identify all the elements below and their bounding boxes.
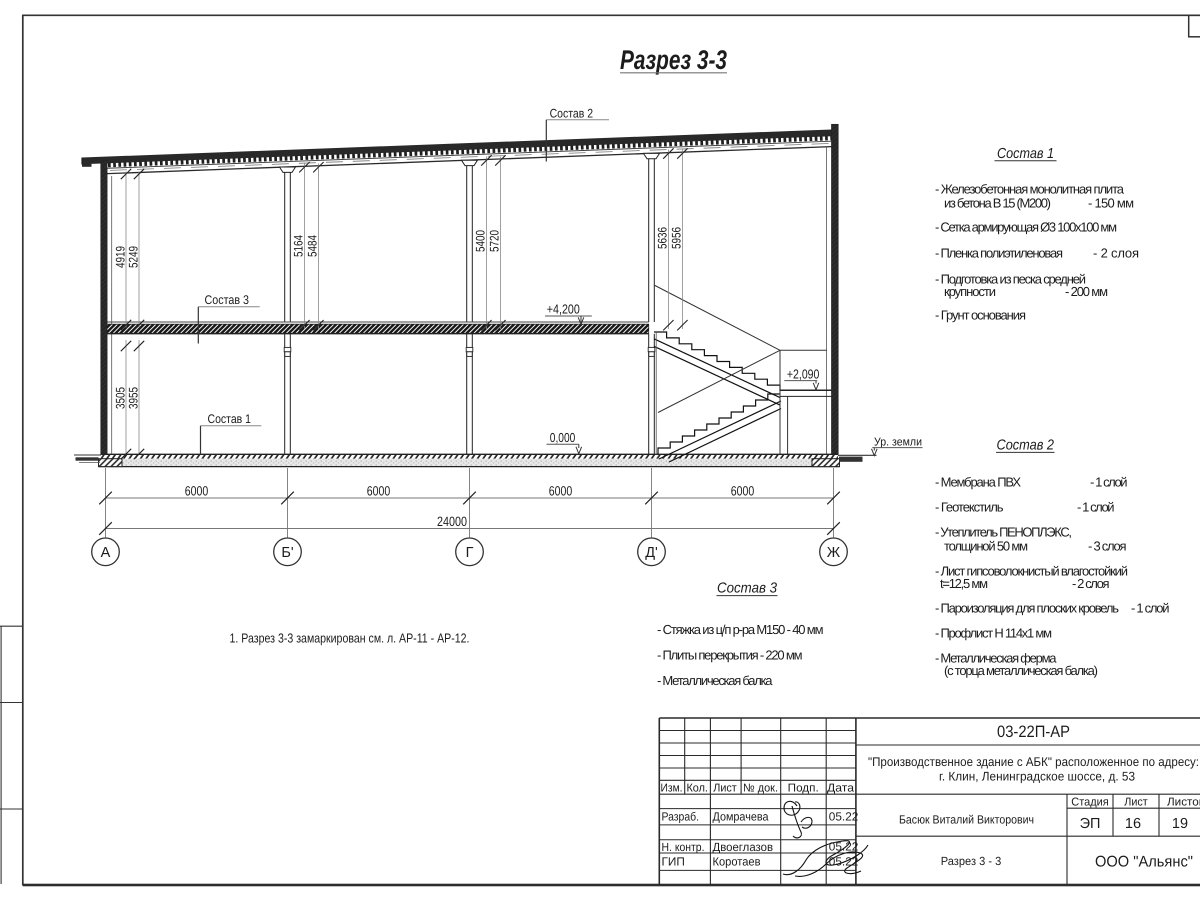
svg-text:5164: 5164 xyxy=(292,235,306,257)
svg-text:Д': Д' xyxy=(645,545,658,561)
svg-text:- Стяжка из ц/п р-ра М150 - 40: - Стяжка из ц/п р-ра М150 - 40 мм xyxy=(657,622,824,637)
svg-text:Состав 3: Состав 3 xyxy=(717,581,777,597)
svg-text:ООО "Альянс": ООО "Альянс" xyxy=(1095,853,1193,870)
svg-text:Кол.: Кол. xyxy=(686,782,708,794)
svg-text:Изм.: Изм. xyxy=(661,782,683,794)
svg-text:1. Разрез 3-3 замаркирован см.: 1. Разрез 3-3 замаркирован см. л. АР-11 … xyxy=(230,631,470,646)
svg-text:05.22: 05.22 xyxy=(829,854,859,868)
svg-text:из бетона В 15 (М200): из бетона В 15 (М200) xyxy=(944,196,1051,211)
svg-text:16: 16 xyxy=(1125,816,1141,832)
svg-text:Г: Г xyxy=(466,545,474,561)
svg-text:Ж: Ж xyxy=(827,545,841,561)
svg-text:Состав 1: Состав 1 xyxy=(208,412,252,426)
svg-text:Стадия: Стадия xyxy=(1071,796,1109,808)
svg-text:Состав 1: Состав 1 xyxy=(997,146,1054,162)
svg-text:5636: 5636 xyxy=(656,227,670,249)
svg-text:- Пленка полиэтиленовая: - Пленка полиэтиленовая xyxy=(935,245,1063,260)
svg-text:- Мембрана ПВХ: - Мембрана ПВХ xyxy=(935,475,1021,490)
svg-text:- Железобетонная монолитная п: - Железобетонная монолитная плита xyxy=(935,182,1125,197)
svg-text:- 2 слоя: - 2 слоя xyxy=(1072,576,1110,591)
svg-text:Подп.: Подп. xyxy=(788,782,819,794)
svg-text:Домрачева: Домрачева xyxy=(713,809,769,823)
svg-text:Ур. земли: Ур. земли xyxy=(874,436,922,448)
svg-text:+2,090: +2,090 xyxy=(787,367,820,382)
svg-text:(с торца металлическая балка): (с торца металлическая балка) xyxy=(944,663,1098,678)
svg-text:5956: 5956 xyxy=(670,227,684,249)
svg-text:5249: 5249 xyxy=(126,246,140,268)
svg-text:0,000: 0,000 xyxy=(550,430,576,445)
svg-text:Двоеглазов: Двоеглазов xyxy=(713,840,774,854)
svg-text:Лист: Лист xyxy=(713,782,737,794)
svg-text:05.22: 05.22 xyxy=(829,809,859,823)
svg-text:- Металлическая балка: - Металлическая балка xyxy=(657,673,773,688)
svg-text:4919: 4919 xyxy=(113,246,127,268)
svg-text:- Профлист Н 114х1 мм: - Профлист Н 114х1 мм xyxy=(935,626,1052,641)
svg-text:03-22П-АР: 03-22П-АР xyxy=(997,723,1070,741)
svg-text:3955: 3955 xyxy=(126,387,140,409)
svg-text:19: 19 xyxy=(1172,816,1188,832)
svg-text:"Производственное здание с АБК: "Производственное здание с АБК" располож… xyxy=(868,755,1199,769)
svg-text:- 3 слоя: - 3 слоя xyxy=(1088,538,1127,553)
svg-text:5720: 5720 xyxy=(488,230,502,252)
svg-text:ГИП: ГИП xyxy=(662,854,685,868)
svg-text:ЭП: ЭП xyxy=(1080,816,1101,832)
svg-text:№ док.: № док. xyxy=(743,782,778,794)
svg-text:6000: 6000 xyxy=(549,483,573,498)
svg-text:- 2 слоя: - 2 слоя xyxy=(1093,245,1139,260)
svg-text:крупности: крупности xyxy=(944,284,996,299)
svg-text:- Геотекстиль: - Геотекстиль xyxy=(935,500,1004,515)
svg-text:- 1 слой: - 1 слой xyxy=(1131,601,1170,616)
svg-text:- 1 слой: - 1 слой xyxy=(1090,475,1128,490)
svg-text:г. Клин, Ленинградское шоссе,: г. Клин, Ленинградское шоссе, д. 53 xyxy=(939,770,1135,784)
svg-text:Листов: Листов xyxy=(1167,796,1200,808)
svg-text:- 1 слой: - 1 слой xyxy=(1077,500,1115,515)
svg-text:- Утеплитель ПЕНОПЛЭКС,: - Утеплитель ПЕНОПЛЭКС, xyxy=(935,524,1072,539)
svg-text:Разраб.: Разраб. xyxy=(662,809,700,823)
svg-text:- Плиты перекрытия - 220 мм: - Плиты перекрытия - 220 мм xyxy=(657,648,803,663)
svg-text:+4,200: +4,200 xyxy=(547,302,580,317)
svg-text:Б': Б' xyxy=(281,545,294,561)
svg-text:t=12,5 мм: t=12,5 мм xyxy=(940,576,988,591)
svg-text:А: А xyxy=(101,545,111,561)
svg-text:Разрез 3 - 3: Разрез 3 - 3 xyxy=(941,854,1002,868)
svg-text:- Пароизоляция для плоских кро: - Пароизоляция для плоских кровель xyxy=(935,601,1119,616)
svg-text:Коротаев: Коротаев xyxy=(713,854,761,868)
svg-text:толщиной 50 мм: толщиной 50 мм xyxy=(944,538,1028,553)
svg-text:Басюк Виталий Викторович: Басюк Виталий Викторович xyxy=(899,812,1034,826)
svg-text:Состав 2: Состав 2 xyxy=(550,106,594,120)
svg-text:Дата: Дата xyxy=(827,782,855,794)
svg-text:Н. контр.: Н. контр. xyxy=(662,840,705,854)
svg-text:Разрез 3-3: Разрез 3-3 xyxy=(620,45,727,75)
svg-text:6000: 6000 xyxy=(731,483,755,498)
svg-text:3505: 3505 xyxy=(113,387,127,409)
svg-text:6000: 6000 xyxy=(185,483,209,498)
svg-text:- 150 мм: - 150 мм xyxy=(1088,196,1134,211)
svg-text:Лист: Лист xyxy=(1124,796,1148,808)
svg-text:- Грунт основания: - Грунт основания xyxy=(935,308,1026,323)
svg-text:- 200 мм: - 200 мм xyxy=(1065,284,1108,299)
svg-text:6000: 6000 xyxy=(367,483,391,498)
svg-text:- Сетка армирующая Ø3 100х100: - Сетка армирующая Ø3 100х100 мм xyxy=(935,220,1117,235)
svg-text:5484: 5484 xyxy=(306,235,320,257)
svg-text:5400: 5400 xyxy=(474,230,488,252)
svg-text:Состав 3: Состав 3 xyxy=(205,293,250,307)
svg-text:Состав 2: Состав 2 xyxy=(997,437,1055,453)
svg-text:24000: 24000 xyxy=(437,514,467,529)
